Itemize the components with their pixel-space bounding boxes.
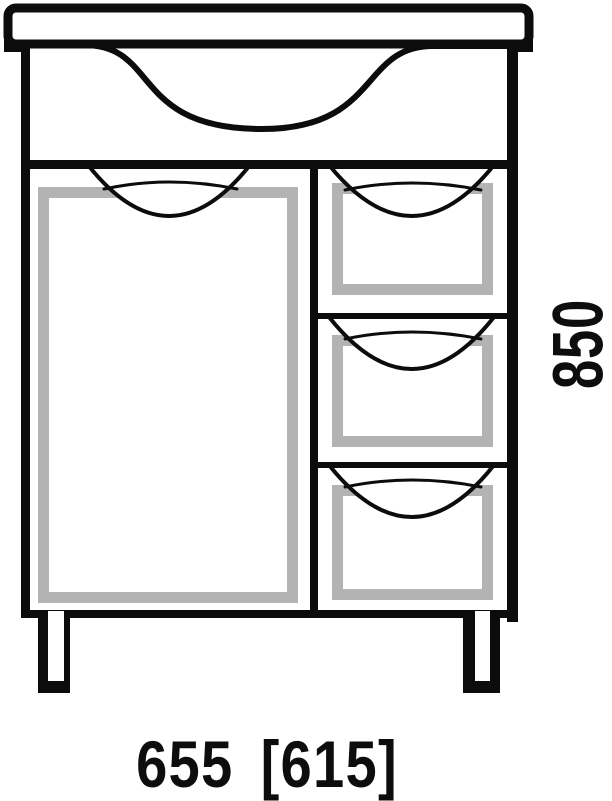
cabinet-left-side — [21, 40, 30, 618]
drawer-divider-2 — [310, 462, 518, 468]
legs — [38, 610, 500, 693]
height-dimension-label: 850 — [544, 299, 612, 389]
vanity-drawing — [0, 0, 612, 800]
door-panel-frame — [44, 193, 293, 598]
left-leg-inner — [48, 611, 64, 681]
countertop-rim — [8, 8, 529, 44]
carcass-bottom-rail — [21, 610, 518, 618]
gray-panel-frames — [44, 189, 488, 598]
cabinet-right-side — [507, 40, 518, 622]
technical-drawing-canvas: 850 655 [615] — [0, 0, 612, 800]
drawer-divider-1 — [310, 313, 518, 319]
door-drawer-divider — [310, 160, 318, 618]
carcass-top-rail — [21, 160, 518, 169]
right-leg-inner — [475, 611, 490, 681]
width-dimension-label: 655 [615] — [136, 731, 398, 797]
sink-basin-outline — [25, 45, 509, 129]
